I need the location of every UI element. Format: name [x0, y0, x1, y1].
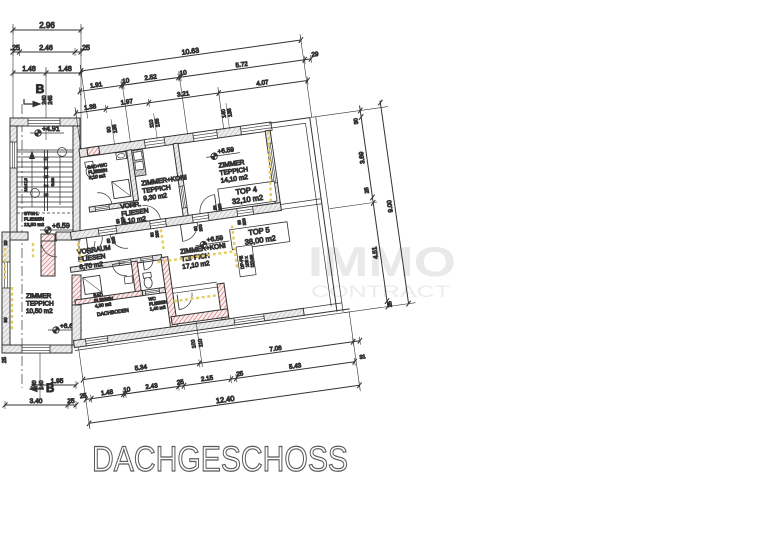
svg-text:25: 25: [364, 187, 371, 194]
svg-text:+6.59: +6.59: [52, 223, 70, 230]
svg-text:200: 200: [197, 223, 203, 231]
svg-text:15: 15: [44, 174, 49, 179]
svg-text:200: 200: [110, 236, 116, 244]
svg-text:2.96: 2.96: [39, 21, 55, 30]
svg-text:200: 200: [154, 230, 160, 238]
svg-text:200: 200: [241, 217, 247, 225]
svg-text:16: 16: [44, 165, 49, 170]
svg-text:25: 25: [2, 357, 8, 363]
svg-text:200: 200: [217, 202, 223, 210]
svg-text:CONTRACT: CONTRACT: [311, 283, 450, 301]
svg-text:14: 14: [44, 183, 49, 188]
svg-text:1.48: 1.48: [22, 66, 36, 73]
svg-text:13: 13: [44, 192, 49, 197]
svg-text:1.48: 1.48: [58, 66, 72, 73]
svg-text:2.46: 2.46: [39, 45, 53, 52]
svg-text:100: 100: [191, 339, 198, 349]
svg-text:+4.91: +4.91: [42, 126, 60, 133]
svg-text:200: 200: [120, 216, 126, 224]
svg-text:17: 17: [44, 156, 49, 161]
svg-text:20: 20: [3, 240, 8, 246]
svg-text:90: 90: [3, 317, 8, 323]
svg-text:25: 25: [67, 398, 75, 405]
svg-text:245: 245: [48, 95, 54, 104]
svg-text:DACHGESCHOSS: DACHGESCHOSS: [92, 440, 348, 479]
svg-text:3.40: 3.40: [30, 398, 43, 405]
svg-text:.25: .25: [10, 45, 20, 52]
svg-text:18x17,5: 18x17,5: [24, 178, 28, 192]
svg-text:31: 31: [359, 354, 366, 361]
svg-text:30: 30: [353, 118, 360, 125]
svg-text:B: B: [36, 82, 45, 96]
svg-text:5x30: 5x30: [51, 178, 55, 186]
svg-text:B: B: [46, 383, 54, 395]
svg-text:.25: .25: [80, 45, 90, 52]
svg-text:ZIMMERTEPPICH10,50 m2: ZIMMERTEPPICH10,50 m2: [26, 293, 54, 315]
